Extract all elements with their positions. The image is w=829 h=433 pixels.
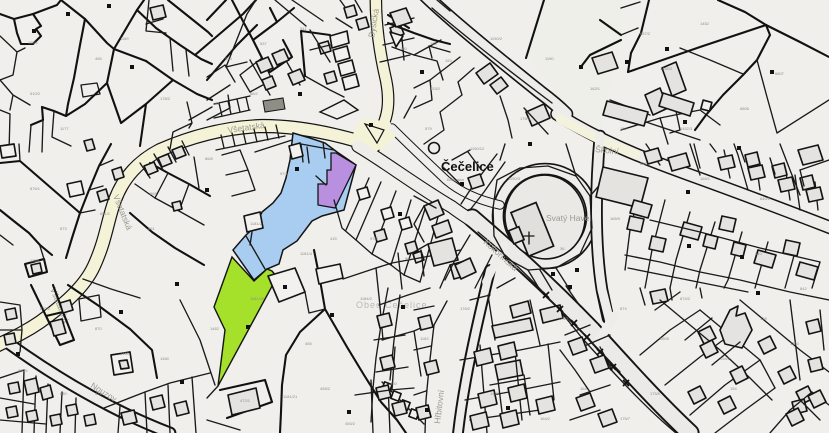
svg-text:178/2: 178/2	[160, 96, 171, 101]
svg-text:1294: 1294	[30, 258, 40, 263]
svg-text:153/2: 153/2	[430, 86, 441, 91]
svg-text:154: 154	[730, 386, 737, 391]
svg-text:1462: 1462	[210, 326, 220, 331]
svg-text:Svatý Havel: Svatý Havel	[546, 213, 591, 223]
svg-text:848: 848	[640, 161, 647, 166]
svg-text:1190/12: 1190/12	[470, 146, 485, 151]
svg-text:1190: 1190	[545, 56, 554, 61]
svg-text:175/2: 175/2	[558, 316, 569, 321]
svg-text:870: 870	[95, 326, 102, 331]
svg-text:1169: 1169	[120, 36, 129, 41]
svg-text:1463: 1463	[120, 351, 130, 356]
svg-text:840: 840	[755, 251, 762, 256]
svg-text:164: 164	[580, 386, 587, 391]
svg-text:1183: 1183	[420, 336, 429, 341]
svg-text:165/9: 165/9	[610, 216, 621, 221]
svg-text:Čečelice: Čečelice	[441, 159, 494, 174]
svg-text:1452/3: 1452/3	[680, 126, 693, 131]
svg-text:456: 456	[95, 56, 102, 61]
svg-text:1177: 1177	[60, 126, 69, 131]
svg-text:1184/2: 1184/2	[360, 296, 373, 301]
svg-text:1181/21: 1181/21	[283, 394, 298, 399]
svg-text:874/2: 874/2	[680, 296, 691, 301]
svg-text:97/1: 97/1	[280, 171, 289, 176]
svg-text:537: 537	[260, 41, 267, 46]
svg-text:165/1: 165/1	[28, 40, 39, 45]
svg-text:6805: 6805	[660, 336, 670, 341]
svg-text:175/7: 175/7	[620, 416, 631, 421]
svg-text:163: 163	[430, 41, 437, 46]
svg-text:36: 36	[560, 246, 565, 251]
svg-text:Obec Čečelice: Obec Čečelice	[356, 300, 428, 310]
svg-text:1350: 1350	[790, 341, 800, 346]
svg-text:541: 541	[300, 26, 307, 31]
svg-text:1181/2: 1181/2	[250, 221, 263, 226]
svg-text:1452/2: 1452/2	[660, 66, 673, 71]
svg-text:6806: 6806	[740, 106, 750, 111]
svg-text:873: 873	[60, 226, 67, 231]
svg-text:880/1: 880/1	[18, 368, 29, 373]
svg-text:880: 880	[60, 391, 67, 396]
svg-text:175/5: 175/5	[650, 391, 661, 396]
svg-text:164/2: 164/2	[540, 416, 551, 421]
svg-text:861/1: 861/1	[100, 211, 111, 216]
svg-text:165/1: 165/1	[700, 176, 711, 181]
svg-text:472: 472	[95, 391, 102, 396]
svg-text:86/8: 86/8	[205, 156, 214, 161]
svg-text:1190/3: 1190/3	[508, 176, 521, 181]
svg-text:842: 842	[800, 286, 807, 291]
svg-text:450: 450	[390, 381, 397, 386]
svg-text:153: 153	[445, 58, 452, 63]
svg-text:92: 92	[215, 101, 220, 106]
svg-text:154/2: 154/2	[720, 356, 731, 361]
svg-text:99: 99	[405, 256, 410, 261]
svg-text:533: 533	[225, 56, 232, 61]
svg-text:579: 579	[425, 126, 432, 131]
svg-text:86/2: 86/2	[250, 91, 259, 96]
svg-text:510/2: 510/2	[30, 91, 41, 96]
svg-text:1452: 1452	[700, 21, 710, 26]
svg-text:868: 868	[150, 191, 157, 196]
svg-text:415: 415	[330, 236, 337, 241]
svg-text:162/1: 162/1	[590, 86, 601, 91]
svg-text:1181/20: 1181/20	[250, 296, 265, 301]
svg-text:176/2: 176/2	[460, 306, 471, 311]
svg-text:138: 138	[760, 316, 767, 321]
svg-text:867/2: 867/2	[640, 31, 651, 36]
svg-text:455/2: 455/2	[320, 386, 331, 391]
svg-text:1460: 1460	[160, 356, 170, 361]
svg-text:1181/4: 1181/4	[300, 251, 313, 256]
svg-text:190: 190	[400, 46, 407, 51]
svg-text:472/1: 472/1	[240, 398, 251, 403]
svg-text:175/1: 175/1	[520, 116, 531, 121]
svg-text:870/2: 870/2	[40, 306, 51, 311]
svg-text:874: 874	[620, 306, 627, 311]
svg-text:840/2: 840/2	[760, 196, 771, 201]
svg-text:97/3: 97/3	[370, 236, 379, 241]
svg-text:450/2: 450/2	[345, 421, 356, 426]
svg-text:162: 162	[620, 126, 627, 131]
svg-text:876/1: 876/1	[30, 186, 41, 191]
svg-text:1190/2: 1190/2	[490, 36, 503, 41]
svg-text:6807: 6807	[775, 71, 785, 76]
svg-text:861: 861	[148, 226, 155, 231]
svg-text:1453: 1453	[490, 391, 500, 396]
svg-text:455: 455	[305, 341, 312, 346]
